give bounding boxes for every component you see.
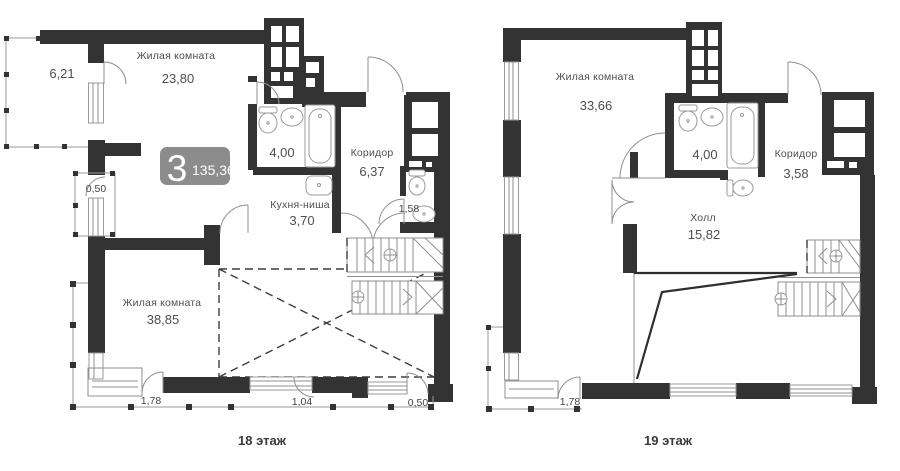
floor-plan-19: Жилая комната 33,66 4,00 Коридор 3,58 Хо… <box>486 22 877 448</box>
vent-shaft-icon <box>264 18 324 104</box>
room-label-living-19: Жилая комната <box>556 71 634 83</box>
room-label-hall: Холл <box>690 212 716 224</box>
room-label-living-bottom: Жилая комната <box>123 297 201 309</box>
room-area-balcony-left: 0,50 <box>86 183 107 195</box>
floor-caption-19: 19 этаж <box>644 433 693 448</box>
void-railing <box>634 273 797 383</box>
room-label-kitchen: Кухня-ниша <box>270 199 330 211</box>
room-area-bathroom-19: 4,00 <box>692 147 717 162</box>
room-area-corridor-19: 3,58 <box>783 166 808 181</box>
floor-caption-18: 18 этаж <box>238 433 287 448</box>
room-area-corridor: 6,37 <box>359 164 384 179</box>
room-area-living-top: 23,80 <box>162 71 195 86</box>
sink-icon <box>281 108 303 126</box>
kitchen-sink-icon <box>306 176 332 195</box>
wc-toilet-icon-19 <box>727 180 753 196</box>
badge-total-area: 135,36 <box>192 162 235 178</box>
room-area-hall: 15,82 <box>688 227 721 242</box>
floor-plan-18: 3 135,36 Жилая комната 23,80 6,21 4,00 К… <box>4 18 453 448</box>
floorplan-page: 3 135,36 Жилая комната 23,80 6,21 4,00 К… <box>0 0 900 471</box>
staircase-19 <box>775 240 860 316</box>
dim-balcony-b2: 1,04 <box>292 396 313 408</box>
toilet-icon-19 <box>679 105 697 131</box>
room-area-living-19: 33,66 <box>580 98 613 113</box>
room-label-living-top: Жилая комната <box>137 50 215 62</box>
floorplan-canvas: 3 135,36 Жилая комната 23,80 6,21 4,00 К… <box>0 0 900 471</box>
room-label-corridor-19: Коридор <box>775 148 818 160</box>
badge-rooms-count: 3 <box>167 148 188 189</box>
bathtub-icon <box>305 105 335 167</box>
room-area-kitchen: 3,70 <box>289 213 314 228</box>
vent-shaft-icon-19 <box>686 22 722 102</box>
room-area-wc: 1,58 <box>399 203 420 215</box>
dim-balcony-b3: 0,50 <box>408 397 429 409</box>
sink-icon-19 <box>701 108 723 126</box>
room-area-bathroom: 4,00 <box>269 145 294 160</box>
dim-balcony-b1: 1,78 <box>141 395 162 407</box>
room-area-balcony-top: 6,21 <box>49 66 74 81</box>
room-label-corridor: Коридор <box>351 147 394 159</box>
bathtub-icon-19 <box>727 103 758 168</box>
toilet-icon <box>259 107 277 133</box>
room-area-living-bottom: 38,85 <box>147 312 180 327</box>
staircase-18 <box>347 238 443 314</box>
windows-19 <box>505 62 853 396</box>
area-badge: 3 135,36 <box>160 147 235 189</box>
dim-balcony-19: 1,78 <box>560 396 581 408</box>
